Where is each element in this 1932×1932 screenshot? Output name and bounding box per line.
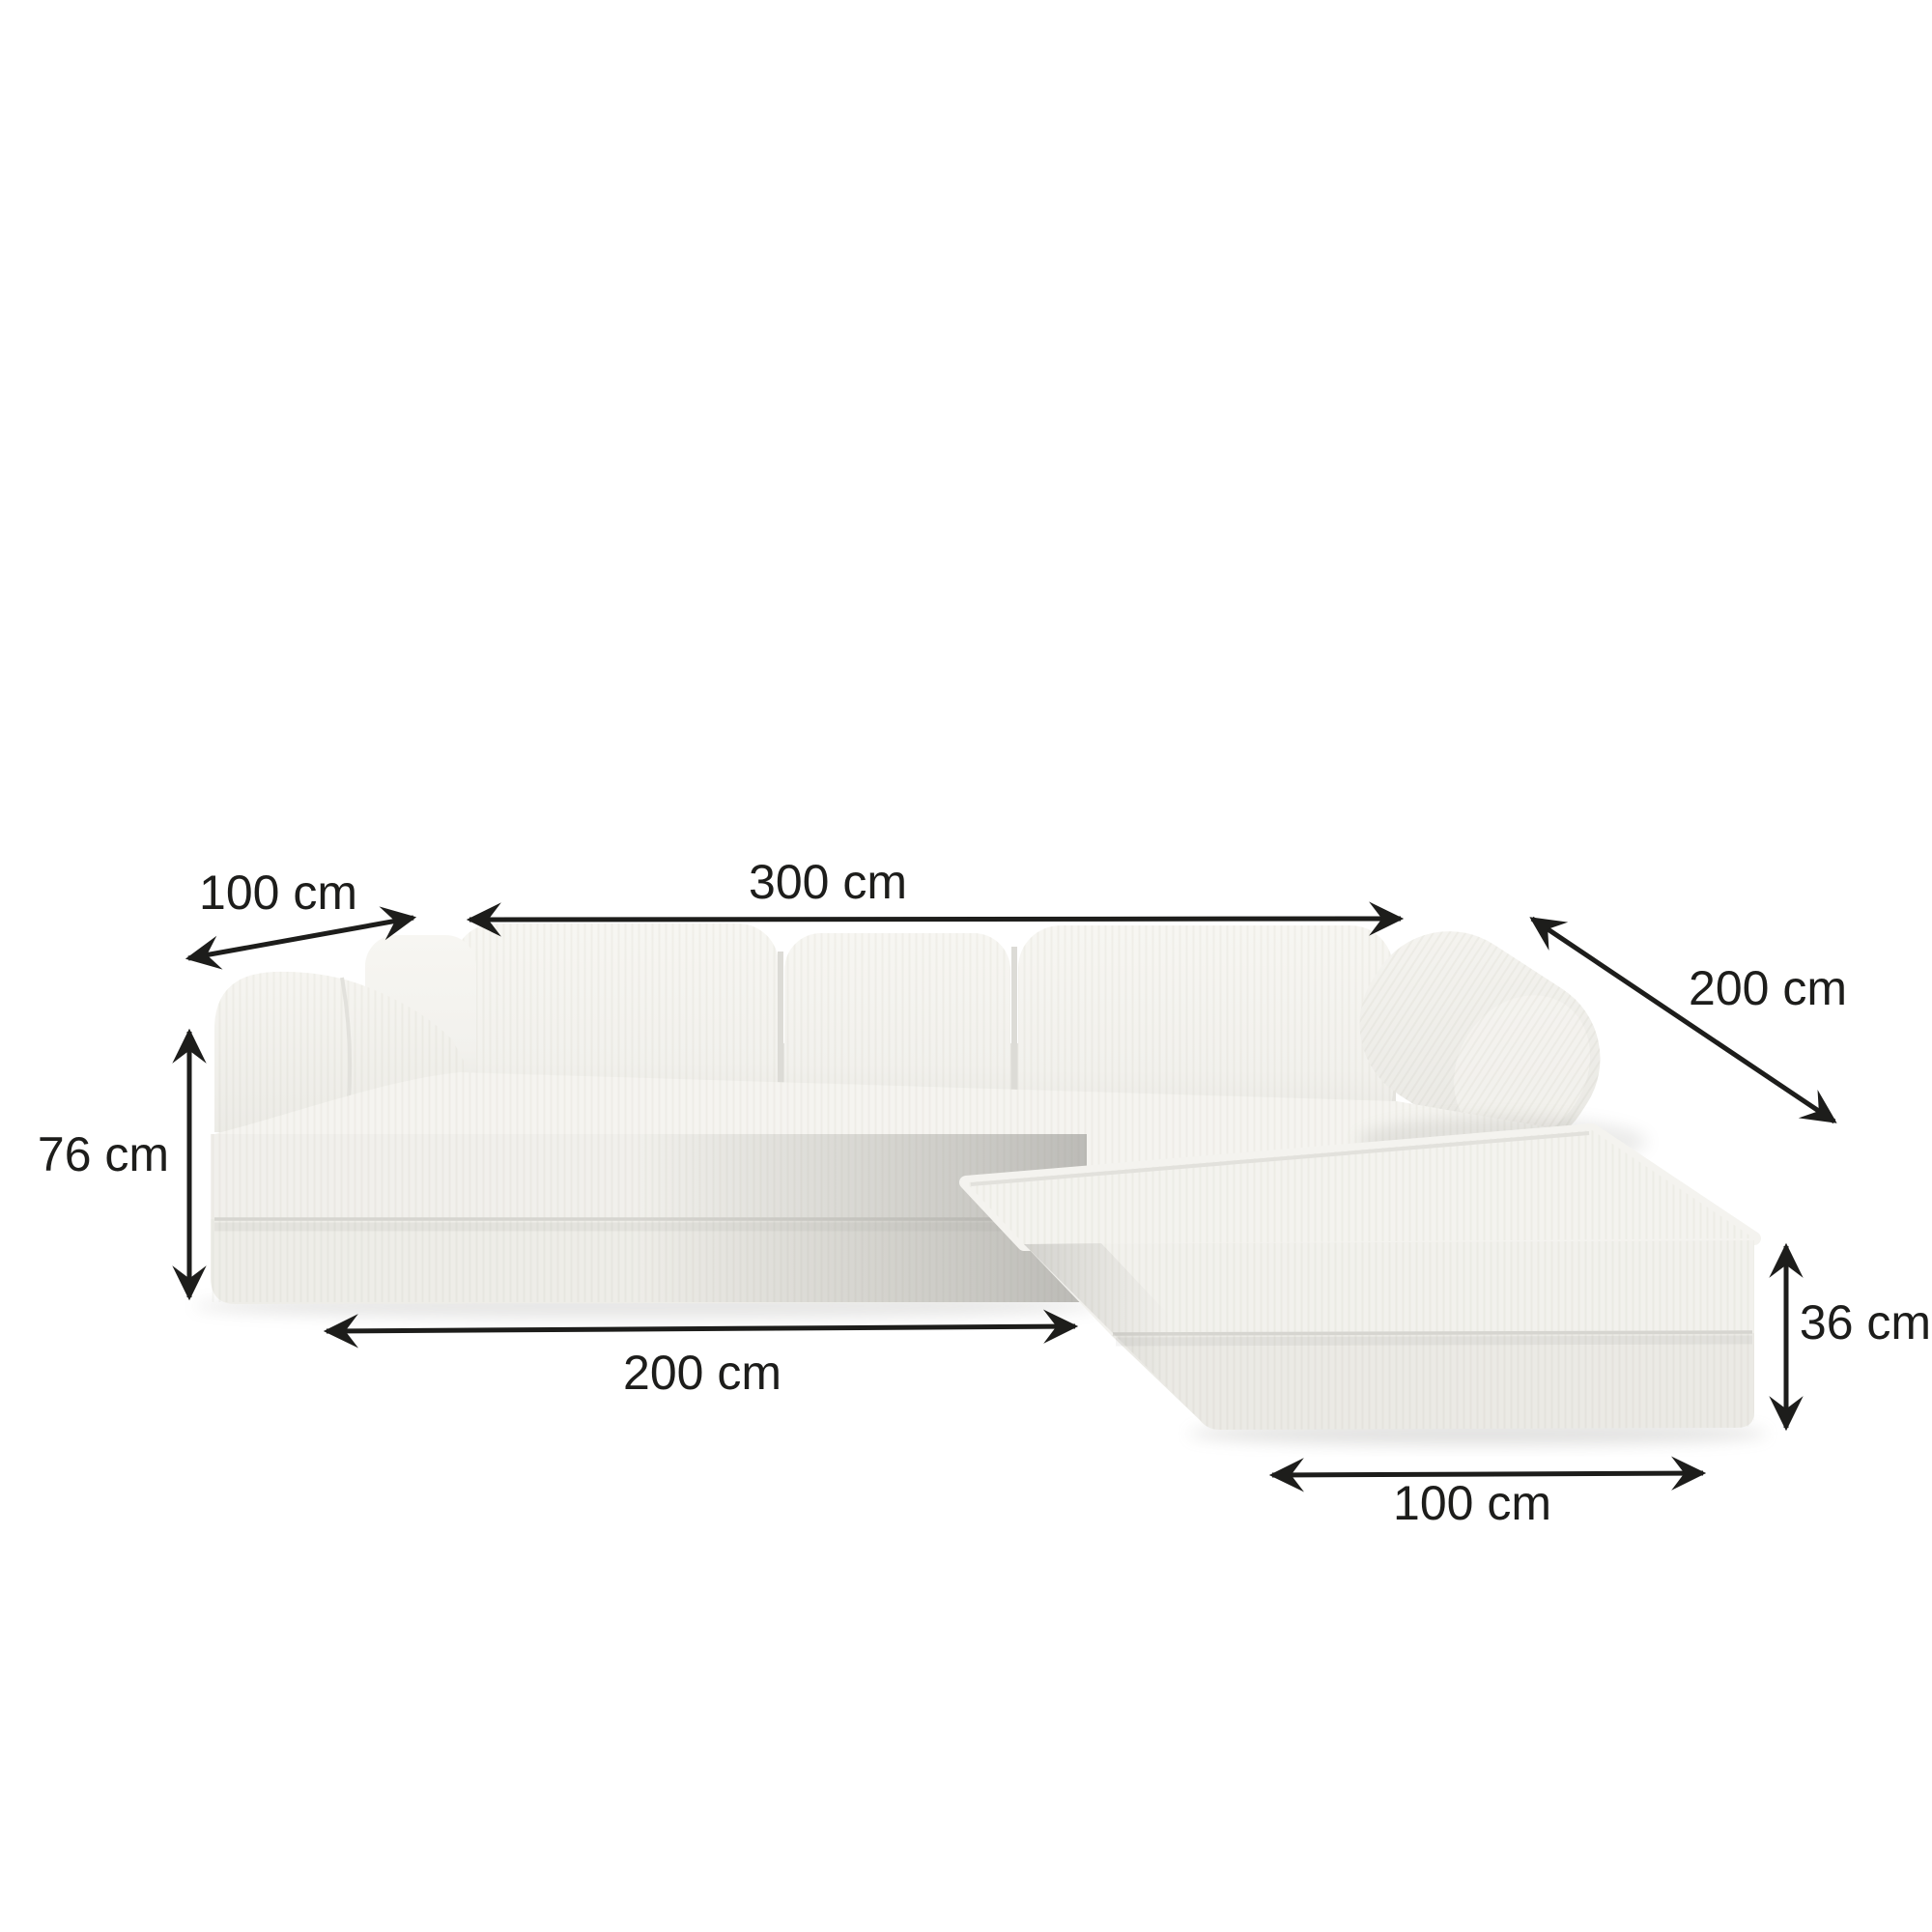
dimension-label-total-length: 300 cm — [749, 855, 907, 909]
sofa-dimension-svg: 100 cm 300 cm 200 cm 76 cm 200 cm 36 cm … — [0, 0, 1932, 1932]
main-front-face — [211, 1134, 1087, 1304]
arrow-total-length — [469, 919, 1401, 920]
dimension-label-total-height: 76 cm — [38, 1127, 169, 1181]
chaise-fold-seam — [1113, 1332, 1752, 1334]
dimension-ottoman-height: 36 cm — [1786, 1246, 1931, 1428]
chaise-ottoman — [966, 1130, 1754, 1430]
dimension-total-height: 76 cm — [38, 1032, 189, 1297]
product-dimension-diagram: 100 cm 300 cm 200 cm 76 cm 200 cm 36 cm … — [0, 0, 1932, 1932]
sofa-illustration — [193, 899, 1768, 1445]
arrow-ottoman-width — [1272, 1473, 1703, 1475]
dimension-label-seat-length: 200 cm — [623, 1346, 781, 1400]
dimension-ottoman-width: 100 cm — [1272, 1473, 1703, 1530]
dimension-seat-length: 200 cm — [327, 1326, 1075, 1400]
dimension-label-chaise-length: 200 cm — [1689, 961, 1847, 1015]
dimension-total-length: 300 cm — [469, 855, 1401, 920]
dimension-label-arm-depth: 100 cm — [199, 866, 357, 920]
dimension-label-ottoman-width: 100 cm — [1393, 1476, 1551, 1530]
arrow-seat-length — [327, 1326, 1075, 1331]
chaise-fold-seam-shadow — [1116, 1340, 1752, 1342]
dimension-label-ottoman-height: 36 cm — [1800, 1295, 1931, 1350]
